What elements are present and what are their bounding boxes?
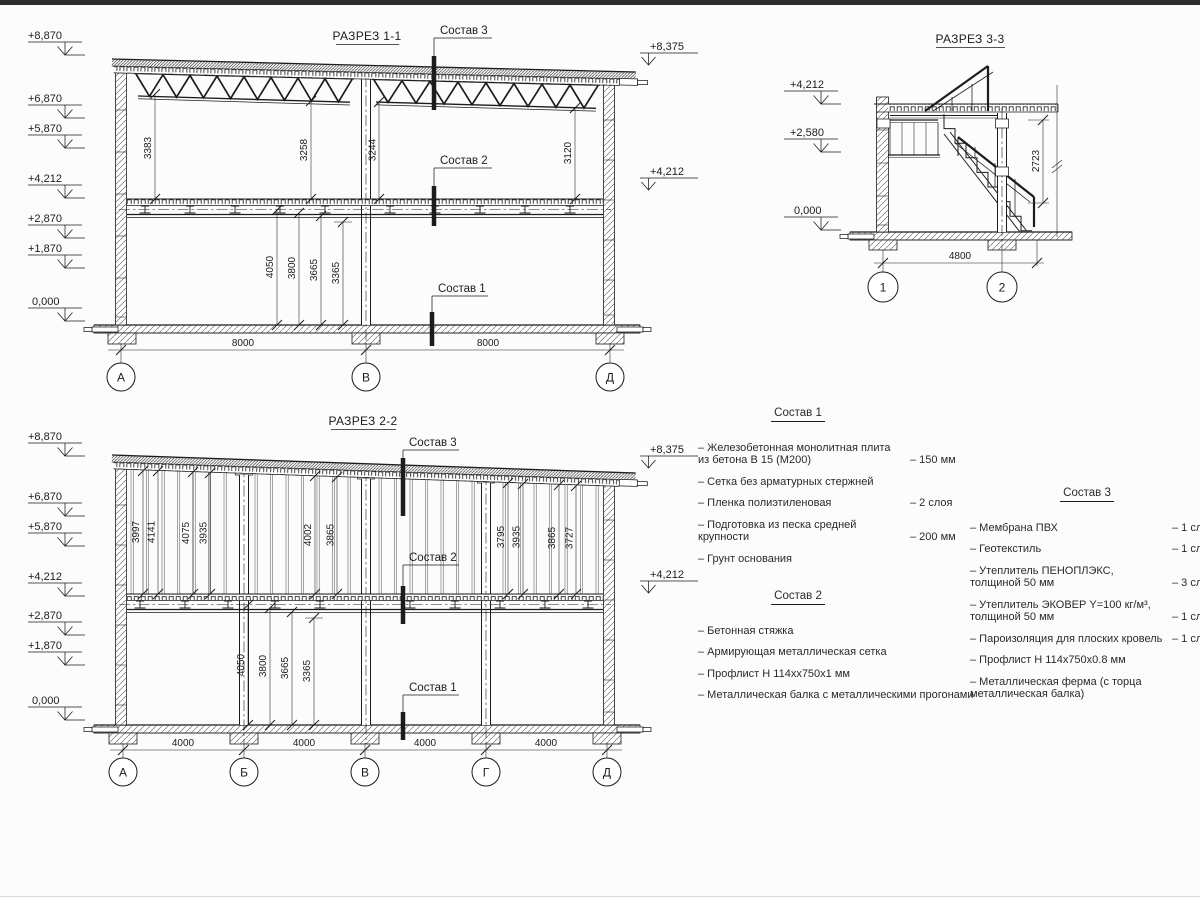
section-title: РАЗРЕЗ 2-2 [329,414,398,428]
axis-label: В [362,371,370,385]
dimension-label: 4800 [949,251,972,262]
dimension-label: 3795 [496,525,507,548]
list-item: – Железобетонная монолитная плита из бет… [698,442,960,467]
dimension-label: 4075 [181,521,192,544]
dimension-label: 3865 [326,523,337,546]
axis-label: Д [603,766,611,780]
item-text: – Металлическая балка с металлическими п… [698,689,986,702]
sostav-1-title: Состав 1 [698,407,898,420]
item-value: – 1 слой [1172,522,1200,535]
elevation-label: +5,870 [28,123,62,135]
list-item: – Утеплитель ЭКОВЕР Y=100 кг/м³, толщино… [970,599,1200,624]
axis-label: А [117,371,125,385]
dimension-label: 3383 [143,136,154,159]
elevation-label: 0,000 [794,205,822,217]
callout-label: Состав 2 [440,155,488,167]
axis-label: 2 [999,281,1006,295]
item-text: – Металлическая ферма (с торца металличе… [970,676,1166,701]
axis-dimensions-1-1: 8000 8000 А В Д [107,338,624,391]
dimension-label: 2723 [1031,149,1042,172]
list-item: – Пленка полиэтиленовая– 2 слоя [698,497,960,510]
list-item: – Профлист Н 114х750х0.8 мм [970,654,1200,667]
item-text: – Пароизоляция для плоских кровель [970,633,1166,646]
item-text: – Геотекстиль [970,543,1166,556]
elevation-marks-1-1-right: +8,375 +4,212 [640,41,698,190]
dimension-label: 3997 [131,520,142,543]
item-value: – 3 слоя [1172,577,1200,590]
list-item: – Пароизоляция для плоских кровель– 1 сл… [970,633,1200,646]
item-value: – 2 слоя [910,497,952,510]
dimension-label: 3365 [302,659,313,682]
sostav-1-list: Состав 1 – Железобетонная монолитная пли… [698,407,960,565]
dimension-label: 3727 [565,526,576,549]
item-text: – Бетонная стяжка [698,625,986,638]
section-2-2: 3997 4141 4075 3935 4002 3865 3795 3935 … [28,414,698,786]
list-item: – Геотекстиль– 1 слой [970,543,1200,556]
drawing-sheet: { "s11": { "title": "РАЗРЕЗ 1-1", "elev"… [0,0,1200,900]
dimension-label: 3244 [368,138,379,161]
dimension-label: 4000 [414,738,437,749]
elevation-label: +4,212 [790,79,824,91]
dimension-label: 3258 [299,138,310,161]
elevation-label: +8,375 [650,41,684,53]
elevation-marks-2-2-left: +8,870 +6,870 +5,870 +4,212 +2,870 +1,87… [28,431,85,720]
dimension-label: 4141 [147,520,158,543]
list-item: – Металлическая ферма (с торца металличе… [970,676,1200,701]
elevation-label: +6,870 [28,93,62,105]
callout-label: Состав 3 [409,437,457,449]
dimension-label: 4000 [535,738,558,749]
item-value: – 1 слой [1172,633,1200,646]
axis-label: 1 [880,281,887,295]
axis-label: А [119,766,127,780]
list-item: – Подготовка из песка средней крупности–… [698,519,960,544]
dimension-label: 3365 [331,261,342,284]
list-item: – Сетка без арматурных стержней [698,476,960,489]
elevation-label: +8,375 [650,444,684,456]
axis-label: Г [483,766,490,780]
roof-slab [112,59,648,86]
dimension-label: 4050 [265,255,276,278]
item-text: – Утеплитель ЭКОВЕР Y=100 кг/м³, толщино… [970,599,1166,624]
elevation-label: 0,000 [32,296,60,308]
item-text: – Профлист Н 114хх750х1 мм [698,668,986,681]
elevation-label: 0,000 [32,695,60,707]
axis-label: В [361,766,369,780]
dimension-label: 4050 [236,653,247,676]
stair-column [877,108,1009,250]
section-title: РАЗРЕЗ 3-3 [936,32,1005,46]
callout-label: Состав 1 [438,283,486,295]
item-text: – Грунт основания [698,553,904,566]
dimension-label: 3800 [287,256,298,279]
elevation-label: +4,212 [650,569,684,581]
elevation-label: +1,870 [28,243,62,255]
elevation-label: +5,870 [28,521,62,533]
elevation-label: +2,870 [28,213,62,225]
list-item: – Армирующая металлическая сетка [698,646,990,659]
item-value: – 1 слой [1172,543,1200,556]
elevation-label: +1,870 [28,640,62,652]
axis-dimensions-2-2: 4000 4000 4000 4000 А Б В Г Д [109,738,622,786]
elevation-label: +6,870 [28,491,62,503]
elevation-label: +8,870 [28,30,62,42]
list-item: – Мембрана ПВХ– 1 слой [970,522,1200,535]
list-item: – Утеплитель ПЕНОПЛЭКС, толщиной 50 мм– … [970,565,1200,590]
elevation-marks-1-1-left: +8,870 +6,870 +5,870 +4,212 +2,870 +1,87… [28,30,85,321]
sostav-3-title: Состав 3 [970,487,1200,500]
item-text: – Армирующая металлическая сетка [698,646,986,659]
callout-label: Состав 1 [409,682,457,694]
item-text: – Утеплитель ПЕНОПЛЭКС, толщиной 50 мм [970,565,1166,590]
item-text: – Железобетонная монолитная плита из бет… [698,442,904,467]
dimension-label: 3865 [547,526,558,549]
dimension-lines-lower-2-2: 4050 3800 3665 3365 [236,600,323,730]
sections-drawing: 3383 3258 3244 3120 4050 3800 3665 3365 [0,0,1200,900]
list-item: – Грунт основания [698,553,960,566]
callout-label: Состав 2 [409,552,457,564]
elevation-marks-2-2-right: +8,375 +4,212 [640,444,698,593]
dimension-label: 3120 [563,141,574,164]
dimension-label: 4000 [293,738,316,749]
item-text: – Сетка без арматурных стержней [698,476,904,489]
axis-label: Д [606,371,614,385]
elevation-label: +4,212 [650,166,684,178]
callout-label: Состав 3 [440,25,488,37]
sostav-3-list: Состав 3 – Мембрана ПВХ– 1 слой – Геотек… [970,487,1200,701]
item-value: – 150 мм [910,454,956,467]
dimension-label: 8000 [232,338,255,349]
section-1-1: 3383 3258 3244 3120 4050 3800 3665 3365 [28,25,698,391]
elevation-label: +2,580 [790,127,824,139]
item-text: – Мембрана ПВХ [970,522,1166,535]
sostav-2-list: Состав 2 – Бетонная стяжка – Армирующая … [698,590,990,702]
dimension-label: 4000 [172,738,195,749]
elevation-label: +4,212 [28,571,62,583]
item-text: – Профлист Н 114х750х0.8 мм [970,654,1166,667]
sostav-2-title: Состав 2 [698,590,898,603]
dimension-label: 3800 [258,654,269,677]
landing-railing [888,120,940,158]
section-title: РАЗРЕЗ 1-1 [333,29,402,43]
item-text: – Подготовка из песка средней крупности [698,519,904,544]
dimension-lines-lower-1-1: 4050 3800 3665 3365 [265,205,352,330]
item-text: – Пленка полиэтиленовая [698,497,904,510]
stair-flight [944,114,1034,232]
dimension-label: 3665 [309,258,320,281]
dimension-label: 3665 [280,656,291,679]
dimension-label: 3935 [512,525,523,548]
list-item: – Профлист Н 114хх750х1 мм [698,668,990,681]
list-item: – Бетонная стяжка [698,625,990,638]
elevation-label: +4,212 [28,173,62,185]
item-value: – 200 мм [910,531,956,544]
dimension-label: 4002 [303,523,314,546]
dimension-label: 8000 [477,338,500,349]
axis-label: Б [240,766,248,780]
elevation-marks-3-3: +4,212 +2,580 0,000 [784,79,841,230]
section-3-3: 2723 4800 1 2 +4,212 +2,580 0,000 РАЗРЕЗ… [784,32,1072,302]
list-item: – Металлическая балка с металлическими п… [698,689,990,702]
elevation-label: +8,870 [28,431,62,443]
dimension-label: 3935 [199,521,210,544]
item-value: – 1 слой [1172,611,1200,624]
elevation-label: +2,870 [28,610,62,622]
